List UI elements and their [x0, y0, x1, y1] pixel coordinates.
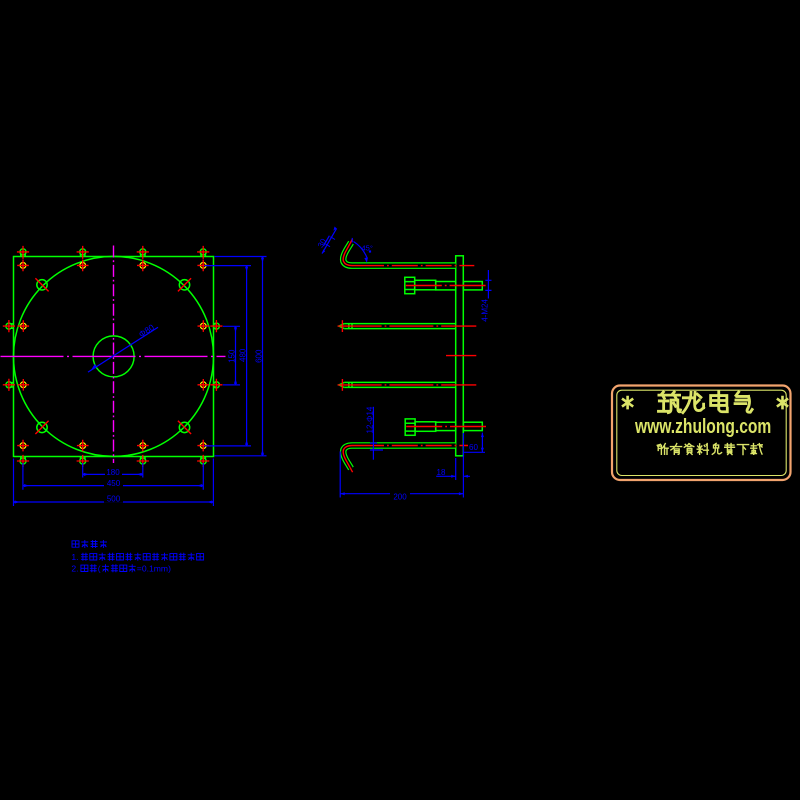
svg-text:4-M24: 4-M24: [481, 299, 490, 322]
svg-text:600: 600: [254, 349, 263, 363]
svg-text:500: 500: [107, 494, 121, 503]
svg-text:2.: 2.: [71, 563, 78, 573]
svg-text:480: 480: [239, 348, 248, 362]
svg-text:Φ80: Φ80: [137, 322, 156, 339]
svg-text:(: (: [98, 563, 101, 573]
svg-text:1.: 1.: [71, 552, 78, 562]
svg-text:60: 60: [469, 443, 478, 452]
svg-text:450: 450: [107, 479, 121, 488]
svg-text:30: 30: [316, 237, 329, 250]
svg-text:=0.1mm): =0.1mm): [137, 563, 171, 573]
svg-text:180: 180: [106, 468, 120, 477]
svg-text:150: 150: [227, 349, 236, 363]
svg-text:www.zhulong.com: www.zhulong.com: [634, 415, 771, 437]
svg-text:18: 18: [437, 468, 446, 477]
svg-text:200: 200: [393, 492, 407, 501]
svg-text:12-Φ14: 12-Φ14: [365, 406, 374, 433]
svg-text:45°: 45°: [362, 244, 373, 253]
